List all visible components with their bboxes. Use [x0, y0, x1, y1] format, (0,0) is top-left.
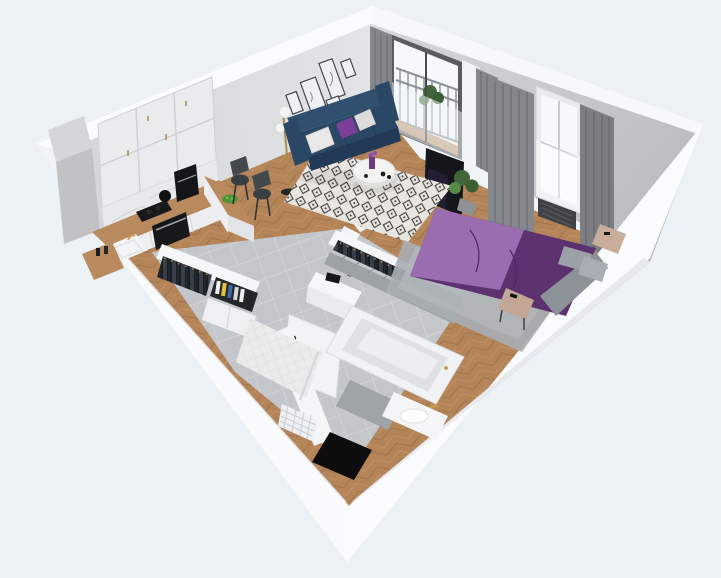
- flower: [369, 153, 374, 158]
- cup: [364, 174, 368, 178]
- phone: [604, 232, 610, 235]
- cup: [381, 172, 386, 177]
- purple-vase: [369, 157, 375, 169]
- fruit-bowl: [222, 195, 238, 204]
- lamp-globe: [280, 107, 291, 118]
- sink-basin: [400, 409, 428, 423]
- apartment-3d-floorplan: [0, 0, 721, 578]
- cup: [387, 175, 391, 179]
- apartment-render-stage: [0, 0, 721, 578]
- bottle: [96, 248, 100, 256]
- burner: [147, 210, 152, 215]
- lamp-globe: [276, 124, 285, 133]
- gold-faucet: [444, 366, 448, 370]
- flower: [373, 151, 377, 155]
- bottle: [104, 246, 108, 254]
- burner: [156, 206, 161, 211]
- kettle: [159, 190, 171, 202]
